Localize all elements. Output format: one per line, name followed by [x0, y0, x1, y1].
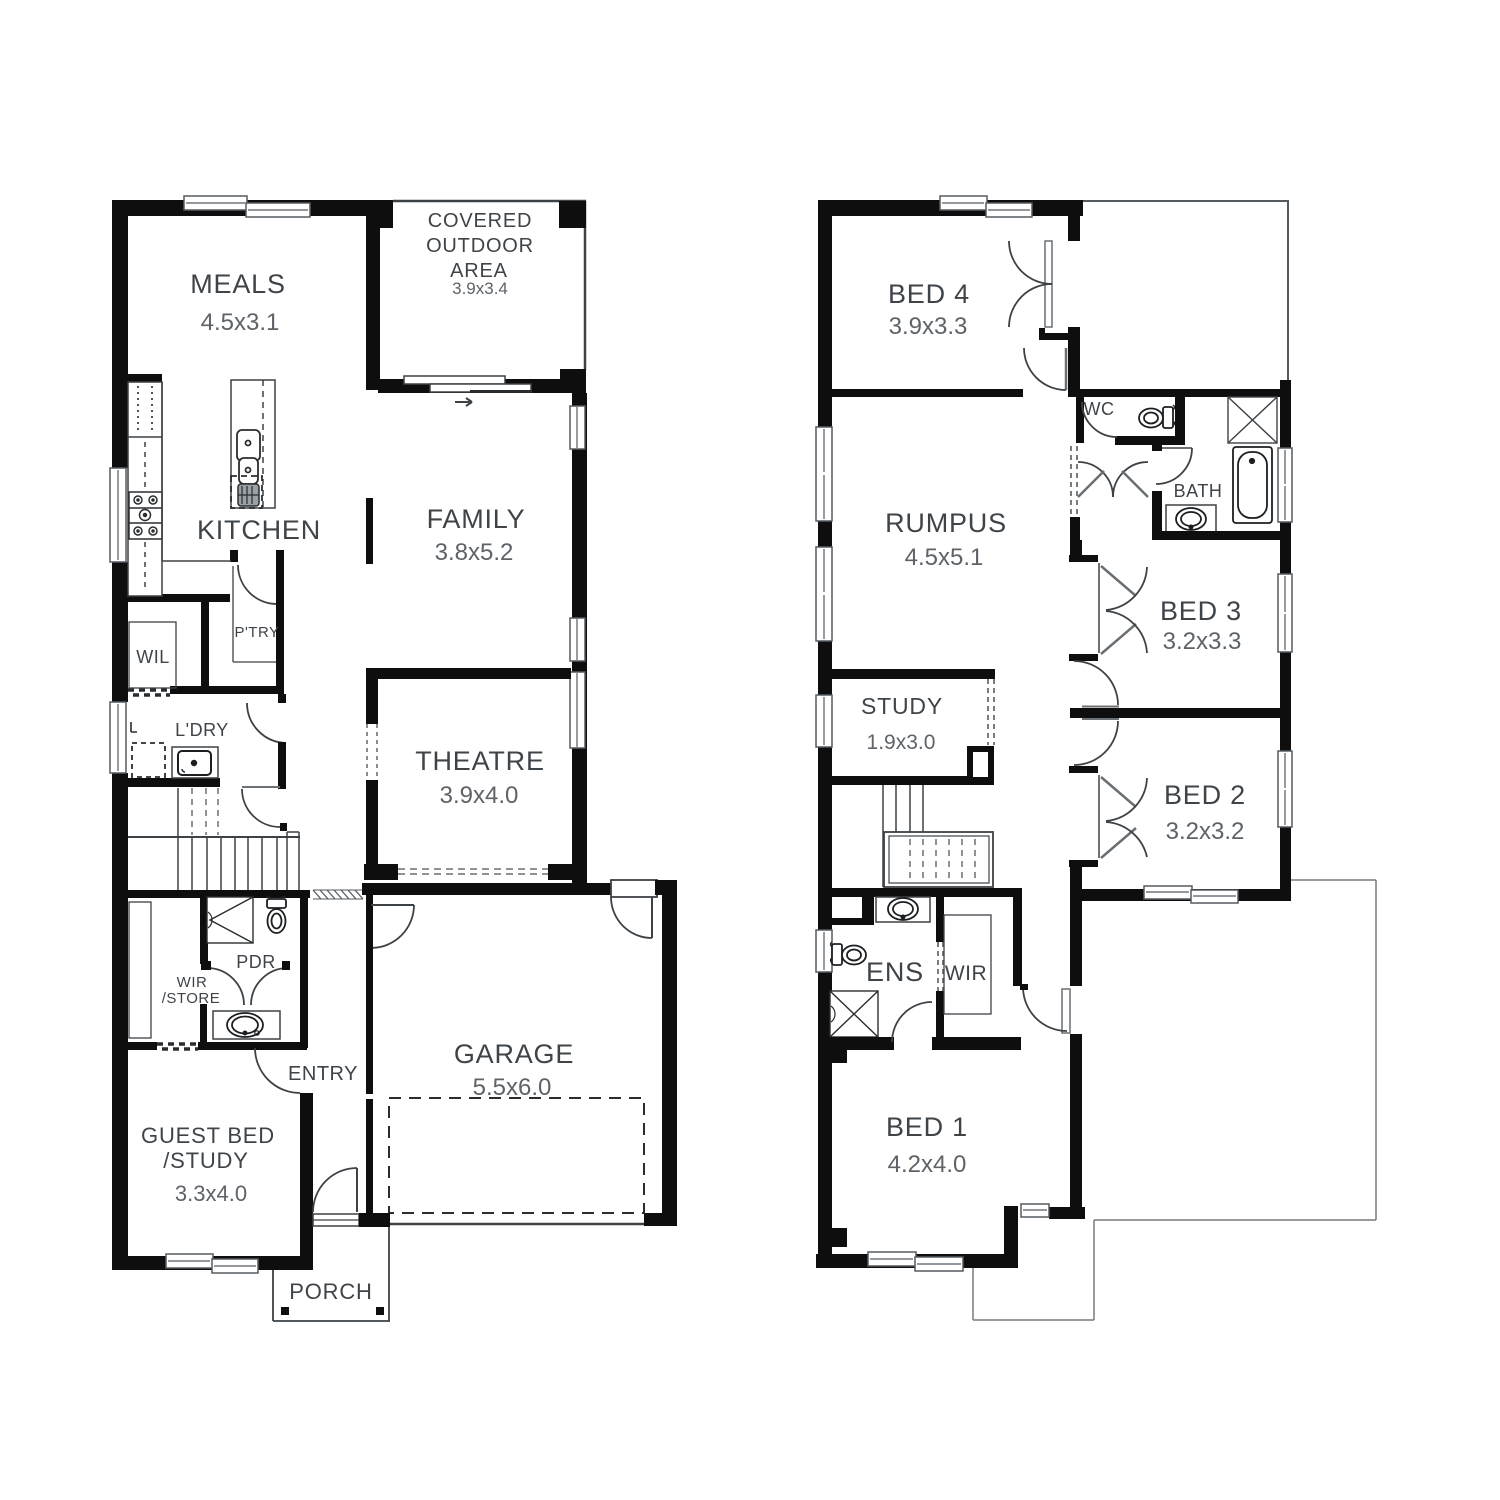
svg-text:WIR: WIR: [945, 962, 987, 985]
svg-text:STUDY: STUDY: [861, 693, 943, 719]
svg-text:3.2x3.2: 3.2x3.2: [1166, 818, 1245, 845]
svg-text:WC: WC: [1084, 399, 1115, 419]
svg-text:RUMPUS: RUMPUS: [885, 508, 1007, 538]
svg-text:WIR: WIR: [177, 974, 208, 991]
svg-text:GUEST BED: GUEST BED: [141, 1123, 275, 1148]
svg-text:3.2x3.3: 3.2x3.3: [1163, 628, 1242, 655]
svg-text:1.9x3.0: 1.9x3.0: [867, 731, 936, 754]
svg-text:BED 1: BED 1: [886, 1112, 968, 1142]
svg-text:BED 2: BED 2: [1164, 780, 1246, 810]
svg-text:/STORE: /STORE: [162, 990, 221, 1007]
svg-text:4.5x5.1: 4.5x5.1: [905, 544, 984, 571]
svg-text:BED 4: BED 4: [888, 279, 970, 309]
svg-text:ENS: ENS: [866, 957, 924, 987]
svg-text:COVERED: COVERED: [428, 210, 533, 232]
svg-text:PDR: PDR: [236, 952, 276, 972]
svg-text:3.3x4.0: 3.3x4.0: [175, 1181, 247, 1206]
svg-text:BED 3: BED 3: [1160, 596, 1242, 626]
svg-text:L'DRY: L'DRY: [175, 720, 229, 740]
svg-text:3.9x3.3: 3.9x3.3: [889, 313, 968, 340]
svg-text:GARAGE: GARAGE: [454, 1039, 574, 1069]
svg-text:PORCH: PORCH: [289, 1279, 372, 1304]
svg-text:WIL: WIL: [136, 647, 170, 667]
svg-text:5.5x6.0: 5.5x6.0: [473, 1074, 552, 1101]
svg-text:THEATRE: THEATRE: [415, 746, 545, 776]
svg-text:3.9x3.4: 3.9x3.4: [452, 279, 508, 298]
svg-text:BATH: BATH: [1174, 481, 1223, 501]
svg-text:OUTDOOR: OUTDOOR: [426, 235, 534, 257]
svg-text:3.8x5.2: 3.8x5.2: [435, 539, 514, 566]
svg-text:P'TRY: P'TRY: [234, 624, 279, 641]
svg-text:3.9x4.0: 3.9x4.0: [440, 782, 519, 809]
svg-text:ENTRY: ENTRY: [288, 1063, 358, 1085]
svg-text:4.2x4.0: 4.2x4.0: [888, 1151, 967, 1178]
svg-text:MEALS: MEALS: [190, 269, 286, 299]
svg-text:FAMILY: FAMILY: [427, 504, 526, 534]
svg-text:4.5x3.1: 4.5x3.1: [201, 309, 280, 336]
svg-text:/STUDY: /STUDY: [163, 1148, 248, 1173]
svg-text:KITCHEN: KITCHEN: [197, 515, 321, 545]
